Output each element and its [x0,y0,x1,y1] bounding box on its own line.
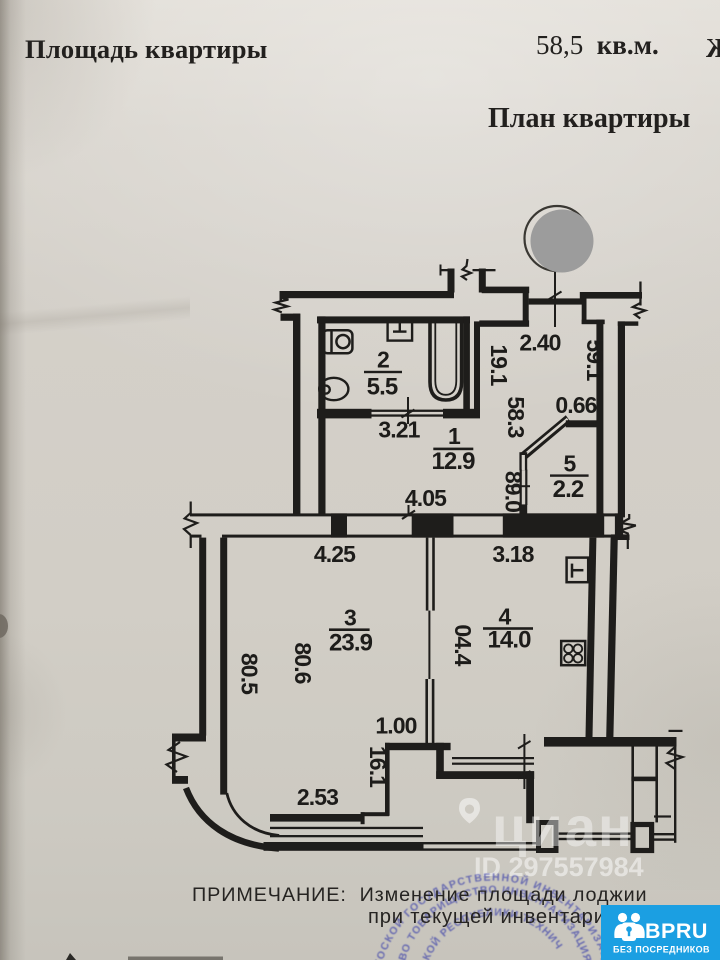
svg-text:80.6: 80.6 [290,642,316,683]
svg-text:80.5: 80.5 [237,653,263,695]
svg-text:1.00: 1.00 [375,713,416,739]
svg-text:2.2: 2.2 [553,476,584,503]
svg-text:16.1: 16.1 [365,746,391,788]
svg-text:5.5: 5.5 [367,374,398,401]
svg-text:5: 5 [564,451,577,477]
svg-text:12.9: 12.9 [431,448,475,475]
svg-text:2: 2 [377,347,389,373]
svg-text:2.53: 2.53 [297,784,338,810]
svg-text:59.1: 59.1 [582,339,608,381]
svg-text:циан: циан [492,795,634,858]
svg-text:3: 3 [344,605,356,631]
svg-text:БЕЗ ПОСРЕДНИКОВ: БЕЗ ПОСРЕДНИКОВ [613,945,710,955]
svg-text:0.66: 0.66 [555,392,596,418]
svg-text:04.4: 04.4 [450,624,476,666]
svg-text:23.9: 23.9 [329,630,373,657]
svg-text:1: 1 [448,423,461,449]
svg-text:BPRU: BPRU [645,919,708,943]
svg-text:3.21: 3.21 [378,417,420,443]
svg-text:4.05: 4.05 [405,485,447,511]
svg-text:3.18: 3.18 [492,541,534,567]
svg-text:19.1: 19.1 [486,344,512,386]
svg-text:4.25: 4.25 [314,541,356,567]
svg-text:2.40: 2.40 [519,330,560,356]
svg-text:14.0: 14.0 [487,627,531,654]
svg-text:89.0: 89.0 [501,471,527,512]
svg-text:58.3: 58.3 [503,396,529,437]
